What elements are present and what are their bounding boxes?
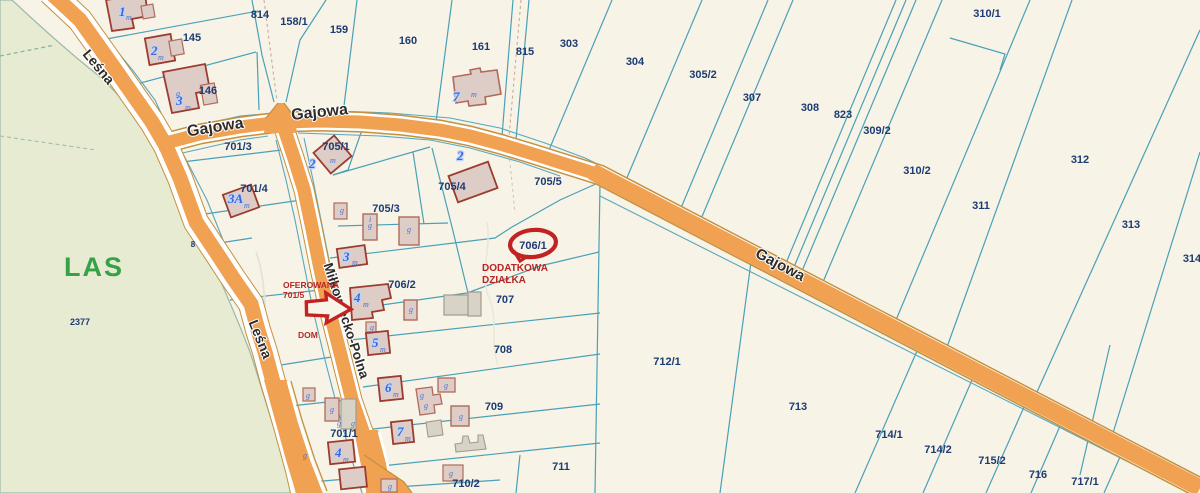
svg-text:g: g <box>303 451 307 460</box>
svg-text:715/2: 715/2 <box>978 455 1006 467</box>
svg-text:m: m <box>352 258 358 267</box>
svg-text:708: 708 <box>494 344 512 356</box>
svg-text:m: m <box>185 103 191 112</box>
svg-text:2: 2 <box>308 156 316 171</box>
svg-text:310/2: 310/2 <box>903 165 931 177</box>
svg-text:m: m <box>380 345 386 354</box>
svg-text:6: 6 <box>385 380 392 395</box>
svg-text:g: g <box>330 405 334 414</box>
svg-text:705/4: 705/4 <box>438 181 466 193</box>
svg-text:2: 2 <box>456 148 464 163</box>
svg-text:310/1: 310/1 <box>973 8 1001 20</box>
svg-text:705/5: 705/5 <box>534 176 562 188</box>
svg-text:DZIAŁKA: DZIAŁKA <box>482 275 526 286</box>
svg-text:g: g <box>176 89 180 98</box>
svg-text:g: g <box>388 482 392 491</box>
svg-text:707: 707 <box>496 294 514 306</box>
svg-text:m: m <box>330 156 336 165</box>
svg-text:g: g <box>449 469 453 478</box>
svg-text:5: 5 <box>372 335 379 350</box>
svg-text:2377: 2377 <box>70 317 90 327</box>
svg-text:145: 145 <box>183 32 201 44</box>
svg-text:313: 313 <box>1122 219 1140 231</box>
svg-text:g: g <box>459 412 463 421</box>
svg-text:309/2: 309/2 <box>863 125 891 137</box>
svg-text:m: m <box>363 300 369 309</box>
svg-text:8: 8 <box>191 240 196 249</box>
svg-text:716: 716 <box>1029 469 1047 481</box>
svg-text:701/3: 701/3 <box>224 141 252 153</box>
svg-text:m: m <box>244 201 250 210</box>
svg-text:g: g <box>409 305 413 314</box>
svg-text:706/1: 706/1 <box>519 240 547 252</box>
svg-text:711: 711 <box>552 461 570 473</box>
svg-text:1: 1 <box>119 4 126 19</box>
svg-text:701/5: 701/5 <box>283 290 305 300</box>
svg-text:g: g <box>407 225 411 234</box>
svg-text:713: 713 <box>789 401 807 413</box>
svg-text:717/1: 717/1 <box>1071 476 1099 488</box>
svg-text:g: g <box>420 391 424 400</box>
svg-text:706/2: 706/2 <box>388 279 416 291</box>
svg-text:i: i <box>369 215 371 224</box>
svg-text:714/2: 714/2 <box>924 444 952 456</box>
svg-text:g: g <box>337 419 341 428</box>
svg-text:303: 303 <box>560 38 578 50</box>
svg-text:314: 314 <box>1183 253 1200 265</box>
svg-text:DOM: DOM <box>298 330 318 340</box>
svg-text:3: 3 <box>342 249 350 264</box>
svg-text:304: 304 <box>626 56 645 68</box>
svg-text:161: 161 <box>472 41 490 53</box>
svg-text:710/2: 710/2 <box>452 478 480 490</box>
svg-text:g: g <box>370 323 374 332</box>
svg-text:705/1: 705/1 <box>322 141 350 153</box>
svg-text:701/4: 701/4 <box>240 183 268 195</box>
svg-text:307: 307 <box>743 92 761 104</box>
svg-text:OFEROWANA: OFEROWANA <box>283 280 339 290</box>
svg-text:g: g <box>424 401 428 410</box>
svg-text:308: 308 <box>801 102 819 114</box>
svg-text:714/1: 714/1 <box>875 429 903 441</box>
svg-text:705/3: 705/3 <box>372 203 400 215</box>
svg-text:g: g <box>351 419 355 428</box>
svg-text:823: 823 <box>834 109 852 121</box>
svg-text:146: 146 <box>199 85 217 97</box>
svg-text:701/1: 701/1 <box>330 428 358 440</box>
svg-text:7: 7 <box>453 89 460 104</box>
svg-text:g: g <box>340 206 344 215</box>
svg-text:m: m <box>393 390 399 399</box>
svg-text:m: m <box>405 434 411 443</box>
svg-text:4: 4 <box>334 445 342 460</box>
svg-text:712/1: 712/1 <box>653 356 681 368</box>
svg-text:g: g <box>306 391 310 400</box>
svg-text:m: m <box>343 455 349 464</box>
svg-text:814: 814 <box>251 9 270 21</box>
svg-text:158/1: 158/1 <box>280 16 308 28</box>
svg-text:305/2: 305/2 <box>689 69 717 81</box>
svg-text:LAS: LAS <box>64 252 124 282</box>
svg-text:311: 311 <box>972 200 990 212</box>
svg-text:m: m <box>471 90 477 99</box>
svg-text:160: 160 <box>399 35 417 47</box>
svg-text:DODATKOWA: DODATKOWA <box>482 263 548 274</box>
svg-text:312: 312 <box>1071 154 1089 166</box>
svg-text:4: 4 <box>353 290 361 305</box>
svg-text:159: 159 <box>330 24 348 36</box>
svg-text:g: g <box>444 381 448 390</box>
svg-text:m: m <box>126 13 132 22</box>
svg-text:815: 815 <box>516 46 534 58</box>
svg-text:709: 709 <box>485 401 503 413</box>
svg-text:2: 2 <box>150 43 158 58</box>
svg-text:7: 7 <box>397 424 404 439</box>
svg-text:m: m <box>158 53 164 62</box>
